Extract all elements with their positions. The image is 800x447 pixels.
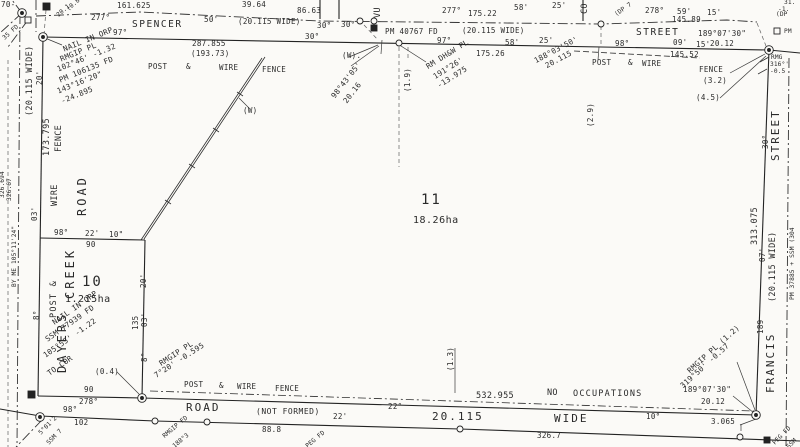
note-width-2: (20.115 WIDE) — [462, 27, 525, 35]
frag-70: 70- — [1, 1, 15, 9]
mark-pm-ne: PM — [784, 29, 792, 36]
offset-1-3: (1.3) — [447, 347, 455, 371]
lot11-number: 11 — [421, 193, 442, 208]
fence-post-left: POST & — [50, 280, 59, 318]
dim-175-26: 175.26 — [476, 50, 505, 58]
width-left: (20.115 WIDE) — [26, 46, 35, 116]
dim-50: 50' — [204, 16, 218, 24]
lot10-dim-20: 20' — [140, 274, 148, 288]
frag-0-5: -0.5 — [770, 69, 785, 76]
dim-22-a: 22' — [333, 413, 347, 421]
dim-161-625: 161.625 — [117, 2, 151, 10]
brg-97-a: 97° — [113, 29, 127, 37]
dim-3-065: 3.065 — [711, 418, 735, 426]
frag-dp: (DP — [776, 12, 787, 19]
brg-30-a: 30° — [317, 22, 331, 30]
marks-right-col: PM 37885 + SSM (304 — [790, 227, 797, 300]
road-bottom-wide: WIDE — [554, 413, 589, 425]
fence-fence-3: FENCE — [275, 385, 299, 393]
lot10-brg-98: 98° — [54, 229, 68, 237]
dim-175-22: 175.22 — [468, 10, 497, 18]
street-street-right: STREET — [770, 109, 782, 161]
dim-20-12-b: 20.12 — [701, 398, 725, 406]
lot10-number: 10 — [82, 275, 103, 290]
frag-by-me: BY ME 105°11'24" — [12, 226, 19, 287]
dim-15-b: 15' — [696, 41, 710, 49]
offset-1-9: (1.9) — [404, 68, 412, 92]
fence-wire-2: WIRE — [642, 60, 661, 68]
brg-277-b: 277° — [442, 7, 461, 15]
dim-532-955: 532.955 — [476, 392, 514, 401]
offset-4-5: (4.5) — [696, 94, 720, 102]
dim-173-795: 173.795 — [43, 118, 52, 156]
offset-3-2: (3.2) — [703, 77, 727, 85]
dim-58-b: 58' — [505, 39, 519, 47]
note-w-dot: (W). — [342, 52, 361, 60]
fence-amp-1: & — [186, 63, 191, 71]
lot10-dim-135: 135 — [132, 316, 140, 330]
dim-03-left: 03' — [31, 207, 39, 221]
dim-86-63: 86.63 — [297, 7, 321, 15]
brg-8-mid: 8° — [141, 352, 149, 362]
note-width-1: (20.115 WIDE) — [238, 18, 301, 26]
street-co-frag: CO — [581, 3, 590, 14]
fence-wire-3: WIRE — [237, 383, 256, 391]
secondary-dashed-lines — [8, 10, 766, 447]
brg-30-b: 30° — [341, 21, 355, 29]
fence-wire-1: WIRE — [219, 64, 238, 72]
brg-98-a: 98° — [615, 40, 629, 48]
lot10-dim-90-bot: 90 — [84, 386, 94, 394]
road-edge-lines — [0, 0, 789, 447]
dim-326-7: 326.7 — [537, 432, 561, 440]
brg-98-bl: 98° — [63, 406, 77, 414]
lot11-area: 18.26ha — [413, 216, 459, 227]
brg-8-left: 8° — [33, 310, 41, 320]
lot10-dim-22: 22' — [85, 230, 99, 238]
cadastral-survey-plan: 70-35 FD20.1(0.8161.62539.64277°SPENCER9… — [0, 0, 800, 447]
note-occupations: OCCUPATIONS — [573, 390, 643, 399]
lot10-dim-03: 03' — [141, 313, 149, 327]
dim-20-12-a: 20.12 — [710, 40, 734, 48]
fence-post-3: POST — [184, 381, 203, 389]
dim-25-b: 25' — [539, 37, 553, 45]
road-dayers-creek: CREEK — [64, 248, 77, 299]
lot10-dim-90-top: 90 — [86, 241, 96, 249]
dim-39-64: 39.64 — [242, 1, 266, 9]
fence-fence-1: FENCE — [262, 66, 286, 74]
frag-326-67: 326.67 — [7, 178, 14, 201]
fence-left-fence: FENCE — [55, 125, 64, 152]
note-w: (W) — [243, 107, 257, 115]
double-circle-marks — [18, 9, 774, 422]
dim-58-a: 58' — [514, 4, 528, 12]
brg-189-07-30-a: 189°07'30" — [698, 30, 746, 38]
brg-30-c: 30° — [305, 33, 319, 41]
dim-09: 09' — [673, 39, 687, 47]
brg-97-b: 97° — [437, 37, 451, 45]
fence-amp-3: & — [219, 382, 224, 390]
street-spencer: SPENCER — [132, 20, 183, 30]
dim-145-89: 145.89 — [672, 16, 701, 24]
offset-2-9: (2.9) — [587, 103, 595, 127]
fence-left-wire: WIRE — [51, 184, 60, 206]
brg-277-a: 277° — [91, 14, 110, 22]
dim-193-73: (193.73) — [191, 50, 230, 58]
brg-30-right: 30° — [762, 135, 770, 149]
dim-287-855: 287.855 — [192, 40, 226, 48]
dim-07-right: 07' — [759, 248, 767, 262]
dim-25-a: 25' — [552, 2, 566, 10]
road-bottom-road: ROAD — [186, 402, 221, 414]
road-bottom-notformed: (NOT FORMED) — [256, 408, 320, 416]
road-dayers-road: ROAD — [76, 175, 89, 216]
width-right: (20.115 WIDE) — [769, 232, 778, 302]
fence-post-1: POST — [148, 63, 167, 71]
brg-189-right: 189 — [757, 320, 765, 334]
lot10-brg-278: 278° — [79, 398, 98, 406]
dim-22-b: 22° — [388, 403, 402, 411]
road-bottom-width: 20.115 — [432, 411, 484, 423]
brg-278: 278° — [645, 7, 664, 15]
street-vu-frag: VU — [374, 7, 383, 18]
offset-0-4: (0.4) — [95, 368, 119, 376]
fence-fence-2: FENCE — [699, 66, 723, 74]
dim-102: 102 — [74, 419, 88, 427]
note-no: NO — [547, 389, 558, 398]
mark-pm40767: PM 40767 FD — [385, 28, 438, 36]
lot10-dim-10sec: 10" — [109, 231, 123, 239]
fence-amp-2: & — [628, 59, 633, 67]
dim-88-8: 88.8 — [262, 426, 281, 434]
dim-145-52: 145.52 — [670, 51, 699, 59]
dim-313-075: 313.075 — [751, 207, 760, 245]
dim-20-left: 20' — [36, 71, 44, 85]
street-street-top: STREET — [636, 28, 679, 38]
street-francis: FRANCIS — [765, 333, 777, 393]
fence-post-2: POST — [592, 59, 611, 67]
dim-10deg: 10° — [646, 413, 660, 421]
brg-189-07-30-b: 189°07'30" — [683, 386, 731, 394]
dim-15-a: 15' — [707, 9, 721, 17]
